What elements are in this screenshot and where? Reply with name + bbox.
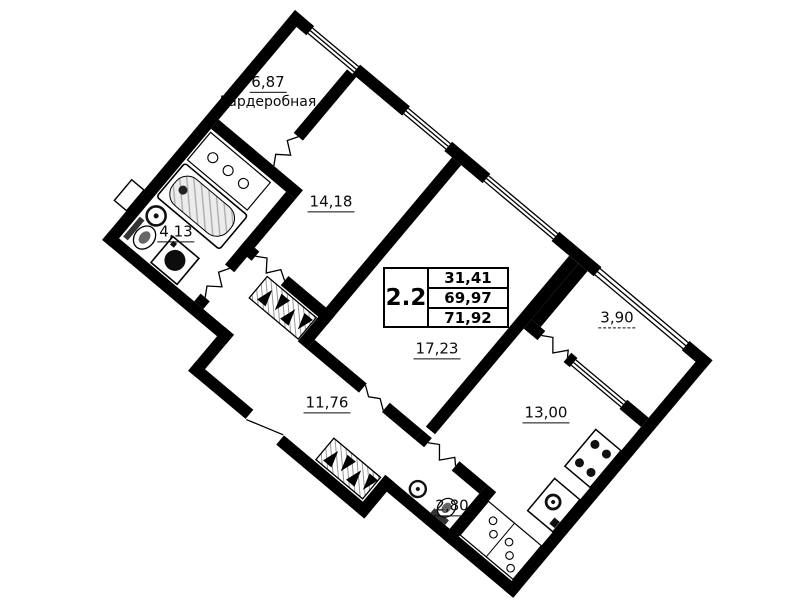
wc-area: 2,80	[433, 497, 470, 516]
total-area-value: 71,92	[429, 307, 507, 327]
living-passage-opening	[360, 385, 388, 410]
room-label-living: 17,23	[414, 340, 461, 359]
room-label-balcony: 3,90	[598, 309, 635, 328]
unit-type: 2.2	[385, 269, 429, 326]
bathroom-area: 4,13	[157, 223, 194, 242]
balcony-door-opening	[538, 331, 572, 362]
living-area: 17,23	[414, 340, 461, 359]
wardrobe-name: Гардеробная	[220, 94, 317, 110]
balcony-area: 3,90	[598, 309, 635, 328]
room-label-hallway: 11,76	[304, 394, 351, 413]
bedroom-area: 14,18	[308, 193, 355, 212]
room-label-wc: 2,80	[433, 497, 470, 516]
room-label-kitchen: 13,00	[523, 404, 570, 423]
hallway-area: 11,76	[304, 394, 351, 413]
wardrobe-area: 6,87	[249, 74, 286, 93]
floor-plan-canvas: 6,87 Гардеробная 14,18 4,13 17,23 11,76 …	[0, 0, 799, 600]
entrance-door-opening	[246, 410, 283, 444]
living-area-value: 31,41	[429, 269, 507, 287]
apartment-area-value: 69,97	[429, 287, 507, 307]
room-label-bedroom: 14,18	[308, 193, 355, 212]
apartment-info-table: 2.2 31,41 69,97 71,92	[383, 267, 509, 328]
room-label-wardrobe: 6,87 Гардеробная	[220, 74, 317, 110]
wardrobe-door-opening	[269, 133, 303, 170]
room-label-bathroom: 4,13	[157, 223, 194, 242]
bathroom-door-opening	[201, 265, 235, 302]
kitchen-area: 13,00	[523, 404, 570, 423]
wc-door-opening	[424, 438, 459, 470]
